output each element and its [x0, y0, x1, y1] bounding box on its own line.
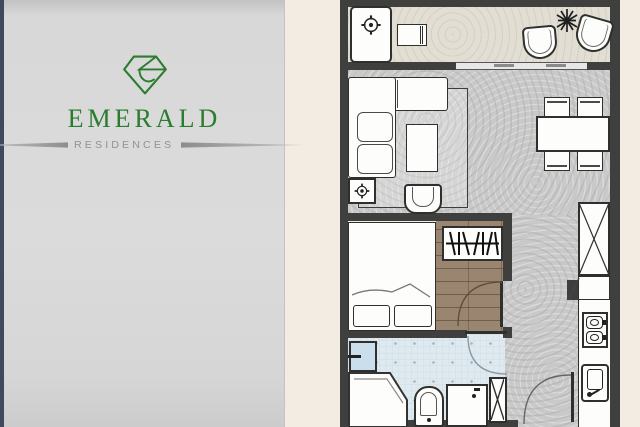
shower-arm	[348, 355, 361, 358]
brand-name: EMERALD	[68, 104, 222, 134]
sink-bowl	[587, 369, 603, 390]
dining-chair	[544, 97, 570, 118]
dining-chair	[577, 150, 603, 171]
stove	[582, 312, 608, 348]
dining-chair-back	[580, 165, 600, 167]
burner-ring	[590, 319, 599, 326]
tagline-right-flourish-icon	[181, 142, 305, 149]
hangers-icon	[444, 228, 501, 259]
bedroom-door-arc	[457, 281, 503, 327]
dining-chair	[577, 97, 603, 118]
sofa-left-section	[348, 77, 396, 178]
stove-knob	[602, 335, 606, 340]
side-table-edge	[420, 26, 423, 44]
brand-panel: EMERALD RESIDENCES	[4, 0, 285, 427]
vanity-sink	[446, 384, 488, 427]
brand-logo: EMERALD RESIDENCES	[4, 52, 285, 151]
wall-balcony-left	[340, 62, 456, 70]
vanity-faucet-icon	[474, 388, 480, 391]
entry-door-arc	[522, 373, 572, 425]
dining-chair	[544, 150, 570, 171]
bathroom-door-arc	[467, 335, 508, 375]
floorplan	[340, 0, 620, 427]
dining-chair-back	[547, 101, 567, 103]
dining-chair-back	[547, 165, 567, 167]
plant-icon	[554, 7, 580, 34]
vanity-soap-dot	[472, 394, 476, 398]
brand-tagline-row: RESIDENCES	[0, 139, 305, 151]
shower-head	[349, 341, 377, 372]
stove-burner	[586, 331, 603, 344]
sofa-cushion	[357, 144, 393, 174]
ac-unit	[350, 6, 392, 63]
sliding-door-panel	[494, 64, 514, 67]
bed-blanket-fold	[352, 282, 432, 300]
bathroom-door-leaf	[465, 331, 507, 334]
counter-shelf	[578, 276, 610, 300]
coffee-table	[406, 124, 438, 172]
pillow	[353, 305, 390, 327]
toilet	[414, 386, 444, 427]
stove-burner	[586, 316, 603, 329]
dining-table	[536, 116, 610, 152]
cabinet-door-line	[567, 276, 581, 302]
hanger-rack	[442, 226, 503, 261]
pillow	[394, 305, 432, 327]
tagline-left-flourish-icon	[0, 142, 68, 149]
burner-ring	[590, 334, 599, 341]
armchair-seat	[412, 187, 434, 207]
sofa-cushion	[357, 112, 393, 142]
wall-balcony-right	[585, 62, 620, 70]
kitchen-sink	[581, 364, 609, 402]
shower-tray	[348, 372, 409, 427]
sofa-seat-divider	[397, 80, 398, 108]
wall-bedroom-right-upper	[503, 221, 512, 281]
brand-tagline: RESIDENCES	[74, 139, 174, 151]
wall-bedroom-top	[340, 213, 512, 221]
balcony-chair-seat	[578, 18, 609, 50]
x-brace-icon	[491, 379, 504, 420]
shaft	[489, 377, 507, 423]
toilet-flush-dot	[427, 418, 431, 422]
sliding-door-panel	[546, 64, 566, 67]
wall-bathroom-top	[340, 330, 467, 338]
floor-ac-unit	[348, 178, 376, 204]
wardrobe	[578, 202, 610, 276]
side-table	[397, 24, 427, 46]
toilet-bowl	[420, 392, 437, 416]
diamond-icon	[121, 52, 169, 98]
fan-icon	[354, 183, 370, 199]
fan-icon	[360, 14, 382, 36]
dining-chair-back	[580, 101, 600, 103]
stove-knob	[602, 320, 606, 325]
armchair	[404, 184, 442, 214]
sliding-door	[456, 62, 587, 70]
balcony-chair-seat	[527, 29, 553, 55]
